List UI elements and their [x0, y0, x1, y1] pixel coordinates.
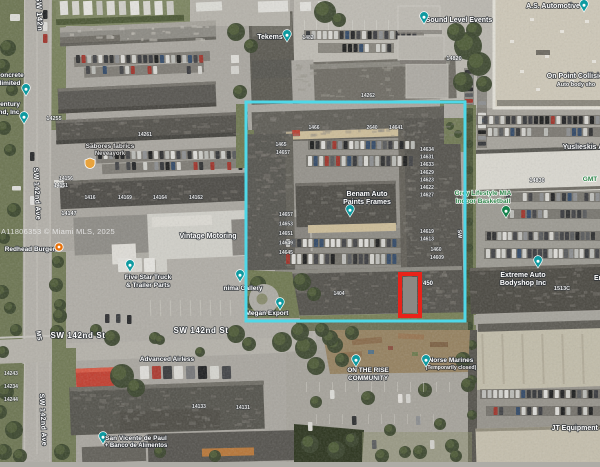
- svg-text:Neveayork: Neveayork: [95, 151, 126, 157]
- svg-text:14164: 14164: [153, 195, 167, 201]
- svg-text:Megan Export: Megan Export: [246, 310, 290, 317]
- svg-text:14657: 14657: [279, 212, 293, 218]
- svg-text:Redhead Burger: Redhead Burger: [5, 246, 56, 253]
- svg-text:14243: 14243: [4, 371, 18, 377]
- svg-text:1404: 1404: [333, 291, 344, 297]
- svg-text:JT Equipment S: JT Equipment S: [552, 425, 600, 432]
- svg-text:1460: 1460: [430, 247, 441, 253]
- svg-text:14169: 14169: [118, 195, 132, 201]
- svg-text:1466: 1466: [308, 125, 319, 131]
- svg-text:Benam Auto: Benam Auto: [347, 191, 388, 198]
- svg-text:Enfu: Enfu: [594, 275, 600, 282]
- svg-text:14830: 14830: [529, 178, 544, 184]
- svg-text:14627: 14627: [420, 193, 434, 199]
- svg-text:Auto body sho: Auto body sho: [557, 82, 596, 88]
- svg-text:14609: 14609: [430, 255, 444, 261]
- svg-text:14653: 14653: [279, 222, 293, 228]
- svg-text:14151: 14151: [54, 183, 68, 189]
- svg-text:Norse Marines: Norse Marines: [429, 357, 474, 364]
- svg-text:SW 142nd St: SW 142nd St: [173, 326, 228, 335]
- svg-text:14255: 14255: [46, 116, 61, 122]
- svg-text:Grey Lifestyle MIA: Grey Lifestyle MIA: [455, 190, 512, 197]
- svg-text:GMT: GMT: [583, 176, 597, 183]
- svg-text:nima Gallery: nima Gallery: [223, 285, 262, 292]
- svg-text:14156: 14156: [59, 176, 73, 182]
- svg-text:14633: 14633: [420, 162, 434, 168]
- svg-text:(Temporarily closed): (Temporarily closed): [426, 365, 477, 371]
- svg-text:& Trailer Parts: & Trailer Parts: [126, 282, 170, 289]
- svg-text:nd, Inc: nd, Inc: [0, 109, 20, 116]
- svg-text:14622: 14622: [420, 185, 434, 191]
- svg-text:1465: 1465: [275, 142, 286, 148]
- svg-text:14234: 14234: [4, 384, 18, 390]
- svg-text:ON THE RISE: ON THE RISE: [347, 367, 389, 374]
- svg-text:14649: 14649: [279, 241, 293, 247]
- svg-text:entury: entury: [0, 101, 20, 108]
- svg-text:Yuslieskis A: Yuslieskis A: [563, 144, 600, 151]
- svg-text:+ Banco de Alimentos: + Banco de Alimentos: [105, 443, 168, 449]
- svg-text:SW: SW: [456, 229, 463, 239]
- svg-text:SW 142n: SW 142n: [34, 0, 45, 31]
- svg-text:14651: 14651: [279, 231, 293, 237]
- svg-text:450: 450: [423, 281, 434, 287]
- svg-text:14262: 14262: [361, 93, 375, 99]
- svg-text:1416: 1416: [84, 195, 95, 201]
- svg-text:14634: 14634: [420, 147, 434, 153]
- svg-text:COMMUNITY: COMMUNITY: [348, 375, 389, 382]
- svg-text:14645: 14645: [279, 250, 293, 256]
- svg-text:oncrete: oncrete: [0, 72, 24, 79]
- svg-text:San Vicente de Paul: San Vicente de Paul: [105, 435, 167, 442]
- svg-text:Extreme Auto: Extreme Auto: [500, 272, 545, 279]
- svg-text:Sabores fabrics: Sabores fabrics: [86, 143, 135, 150]
- svg-text:Vintage Motoring: Vintage Motoring: [179, 233, 236, 240]
- svg-text:14629: 14629: [420, 170, 434, 176]
- svg-text:2640: 2640: [366, 125, 377, 131]
- svg-text:On Point Collisio: On Point Collisio: [547, 73, 600, 80]
- svg-text:14133: 14133: [192, 404, 206, 410]
- svg-text:14147: 14147: [61, 211, 76, 217]
- svg-text:14261: 14261: [138, 132, 152, 138]
- svg-text:14623: 14623: [420, 177, 434, 183]
- svg-text:1513C: 1513C: [554, 286, 570, 292]
- svg-text:1482: 1482: [302, 35, 313, 41]
- svg-text:14619: 14619: [420, 229, 434, 235]
- svg-text:Five Star Truck: Five Star Truck: [125, 274, 172, 281]
- svg-text:14820: 14820: [446, 56, 461, 62]
- svg-text:A11806353 © Miami MLS, 2025: A11806353 © Miami MLS, 2025: [1, 227, 115, 236]
- svg-text:limited: limited: [0, 80, 21, 87]
- svg-text:14131: 14131: [236, 405, 250, 411]
- svg-text:Advanced Airless: Advanced Airless: [140, 356, 195, 363]
- svg-text:Bodyshop Inc: Bodyshop Inc: [500, 280, 546, 287]
- svg-text:14641: 14641: [389, 125, 403, 131]
- svg-text:14613: 14613: [420, 236, 434, 242]
- svg-text:A.S. Automotive: A.S. Automotive: [526, 3, 580, 10]
- svg-text:14631: 14631: [420, 155, 434, 161]
- svg-text:SW 142nd St: SW 142nd St: [50, 331, 105, 340]
- svg-text:Sound Level Events: Sound Level Events: [426, 17, 493, 24]
- svg-text:14162: 14162: [189, 195, 203, 201]
- svg-text:14244: 14244: [4, 397, 18, 403]
- svg-text:14657: 14657: [276, 150, 290, 156]
- svg-text:Tekems: Tekems: [257, 34, 283, 41]
